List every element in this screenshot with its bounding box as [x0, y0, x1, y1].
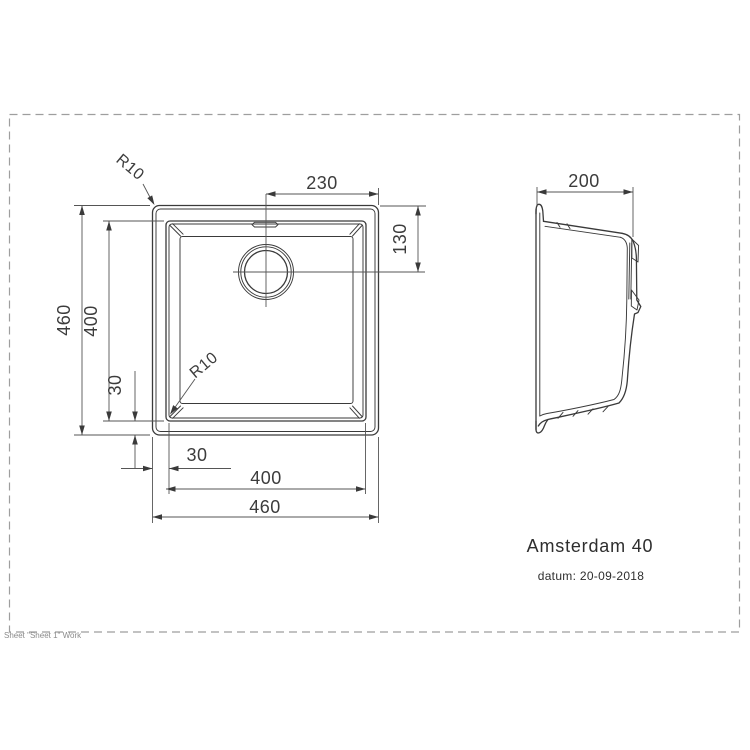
- dim-label-30-horizontal: 30: [186, 445, 207, 465]
- dim-outer-width: 460: [153, 497, 379, 520]
- dim-label-400-left: 400: [81, 305, 101, 337]
- bowl-bottom-edge: [180, 237, 353, 404]
- product-title: Amsterdam 40: [527, 536, 654, 556]
- dim-bowl-width: 400: [166, 468, 366, 492]
- title-block: Amsterdam 40 datum: 20-09-2018: [527, 536, 654, 583]
- dim-bowl-left-offset: 30: [121, 445, 231, 471]
- sheet-footer-label: Sheet "Sheet 1" Work: [4, 631, 82, 640]
- date-label: datum: 20-09-2018: [538, 569, 645, 583]
- dim-bowl-bottom-offset: 30: [105, 371, 138, 469]
- profile-right-outer-edge: [538, 233, 641, 426]
- overflow-slot: [252, 222, 278, 227]
- sink-outer-edge-inner-line: [156, 209, 375, 432]
- technical-drawing: 230 130 460 400 30: [0, 0, 750, 750]
- profile-mounting-clips: [629, 239, 639, 310]
- radius-callout-outer: R10: [113, 151, 157, 206]
- radius-label-bowl: R10: [187, 349, 222, 382]
- dim-label-460-bottom: 460: [249, 497, 281, 517]
- dim-label-230: 230: [306, 173, 338, 193]
- dim-drain-from-top: 130: [390, 206, 421, 272]
- dim-label-400-bottom: 400: [250, 468, 282, 488]
- front-view: 230 130 460 400 30: [54, 151, 426, 523]
- dim-label-460-left: 460: [54, 304, 74, 336]
- dim-drain-from-right: 230: [266, 173, 379, 197]
- drawing-sheet: 230 130 460 400 30: [0, 0, 750, 750]
- dim-label-130: 130: [390, 223, 410, 255]
- sink-outer-edge: [153, 206, 379, 436]
- profile-bowl-inner-surface: [540, 237, 628, 416]
- radius-label-outer: R10: [113, 151, 148, 184]
- dim-label-200: 200: [568, 171, 600, 191]
- radius-callout-bowl: R10: [168, 349, 222, 416]
- side-view: 200: [536, 171, 641, 433]
- dim-label-30-vertical: 30: [105, 374, 125, 395]
